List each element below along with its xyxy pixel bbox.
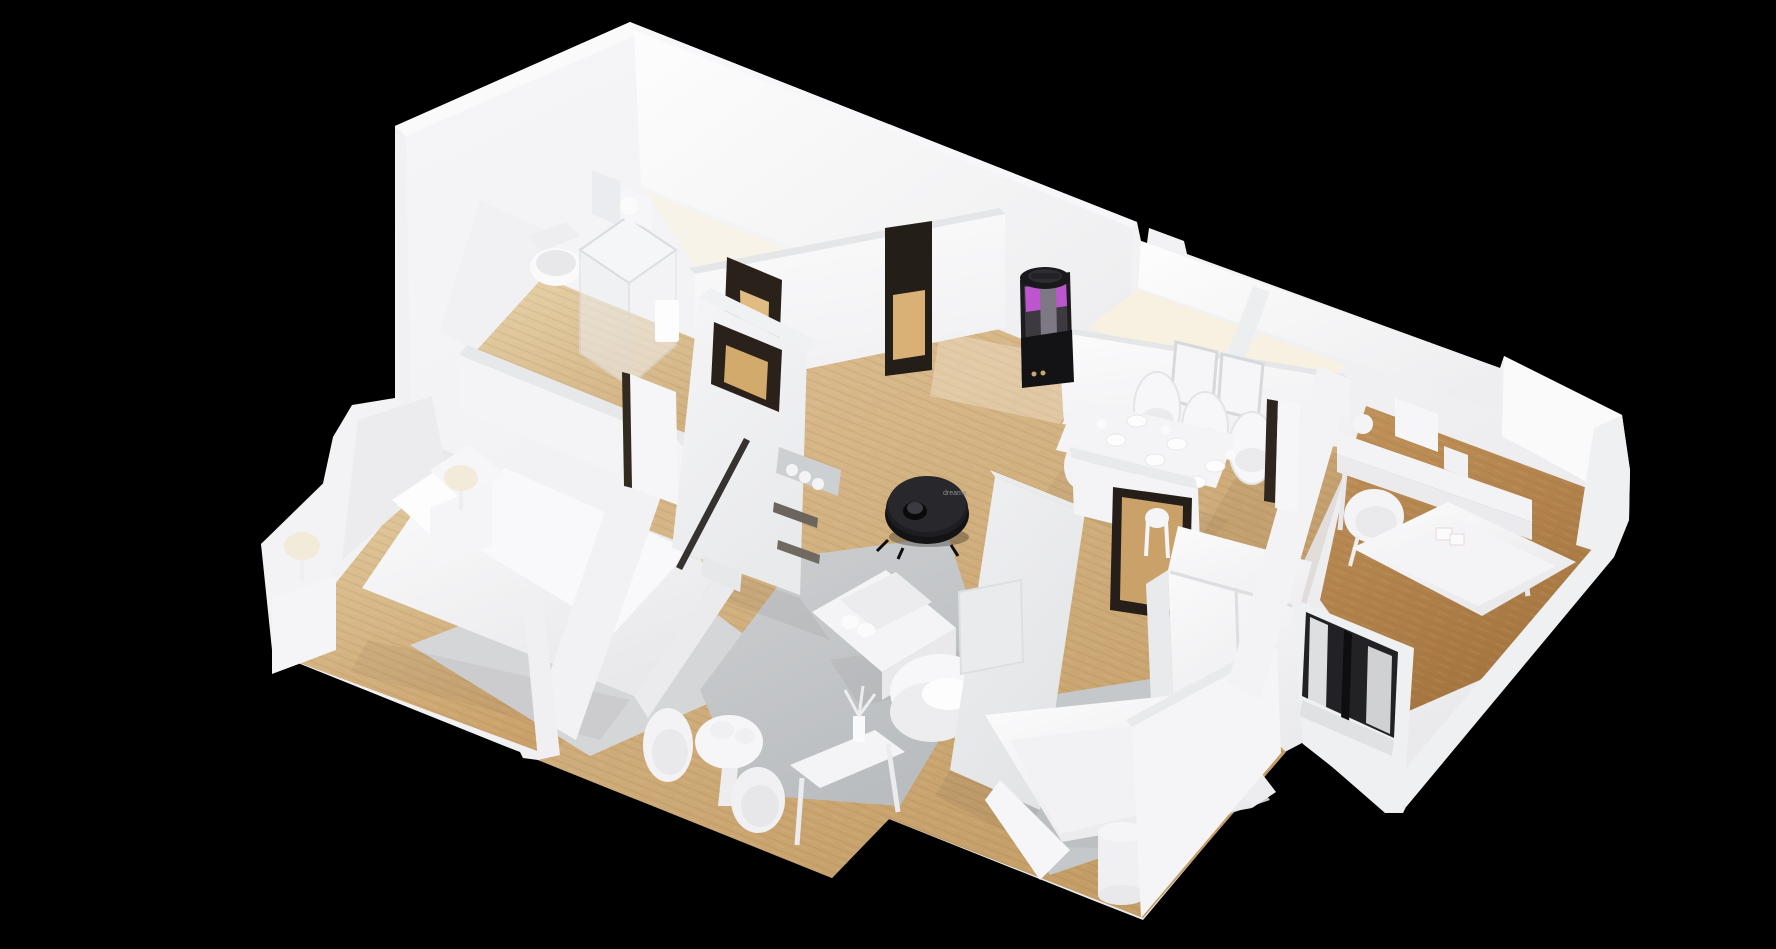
- svg-text:dreame: dreame: [943, 490, 967, 497]
